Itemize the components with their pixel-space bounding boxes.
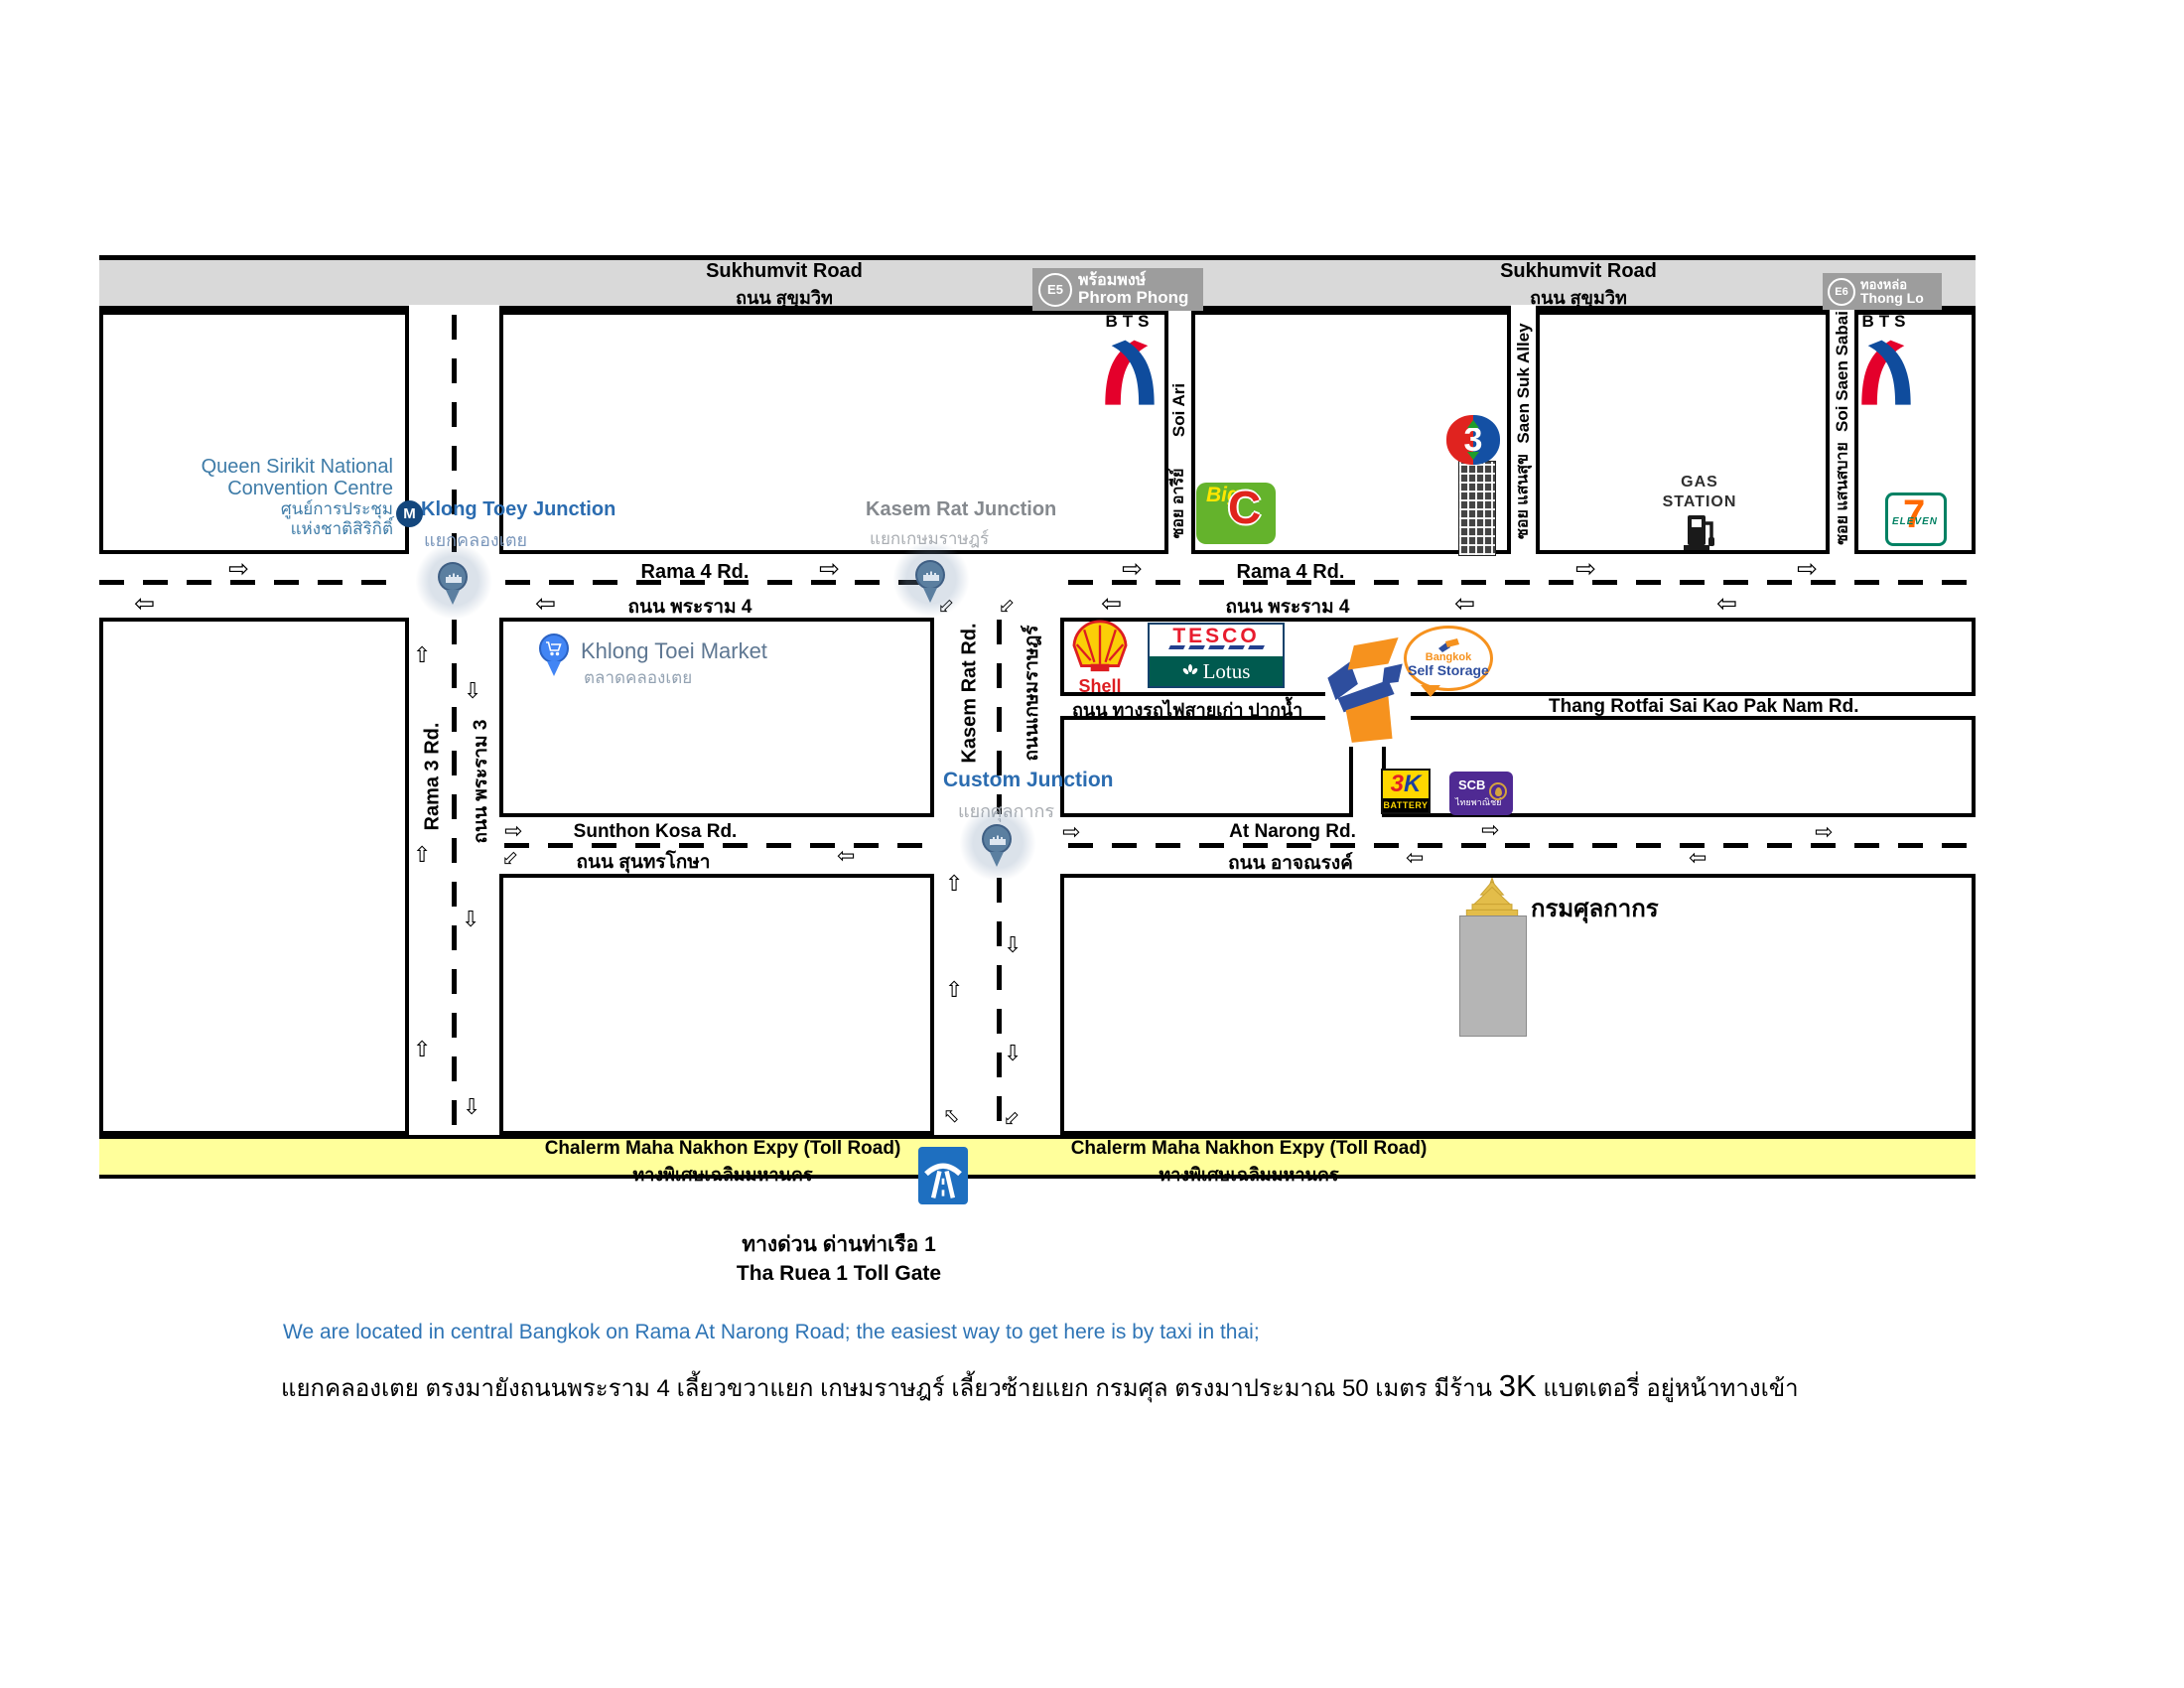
qsncc-th1: ศูนย์การประชุม <box>149 499 393 519</box>
kasem-rat-centerline <box>997 878 1002 1133</box>
3k-battery-word: BATTERY <box>1383 798 1429 812</box>
block-mid-east-a <box>1060 716 1353 817</box>
3k-k: K <box>1404 773 1421 796</box>
mrt-logo-icon: M <box>396 500 423 527</box>
shell-shell-icon <box>1068 620 1132 673</box>
sukhumvit-th: ถนน สุขุมวิท <box>635 283 933 312</box>
ch3-logo: 3 <box>1446 415 1500 465</box>
arrow-left-icon: ⇦ <box>837 846 855 868</box>
station-code-e5: E5 <box>1038 273 1072 307</box>
expressway-label-west: Chalerm Maha Nakhon Expy (Toll Road) ทาง… <box>524 1138 921 1189</box>
bts-mark-icon <box>1854 332 1918 405</box>
arrow-left-icon: ⇦ <box>134 591 155 616</box>
kasem-rat-label-th: ถนนเกษมราษฎร์ <box>1017 626 1046 762</box>
bts-wordmark: BTS <box>1090 312 1169 332</box>
bubble-tail <box>1421 685 1440 707</box>
gas-station-label: GAS STATION <box>1648 473 1751 512</box>
seven-number: 7 <box>1903 492 1925 537</box>
expressway-label-east: Chalerm Maha Nakhon Expy (Toll Road) ทาง… <box>1050 1138 1447 1189</box>
toll-gate-label-th: ทางด่วน ด่านท่าเรือ 1 <box>685 1228 993 1261</box>
kasem-rat-junction-pin-icon <box>913 560 947 608</box>
rama4-label-west-en: Rama 4 Rd. <box>625 561 764 584</box>
saen-suk-label-en: Saen Suk Alley <box>1514 323 1534 443</box>
arrow-up-icon: ⇧ <box>945 980 963 1002</box>
phrom-phong-en: Phrom Phong <box>1078 289 1188 307</box>
self-storage-bubble-logo: Bangkok Self Storage <box>1404 626 1493 691</box>
tesco-dashes <box>1150 645 1283 649</box>
arrow-right-icon: ⇨ <box>1062 822 1080 844</box>
shell-logo: Shell <box>1064 620 1136 697</box>
sunthon-kosa-label-th: ถนน สุนทรโกษา <box>554 847 733 877</box>
arrow-up-icon: ⇧ <box>945 874 963 896</box>
rama3-label-en: Rama 3 Rd. <box>422 723 445 831</box>
arrow-right-icon: ⇨ <box>1122 556 1143 581</box>
tesco-lotus-logo: TESCO Lotus <box>1148 623 1285 688</box>
expressway-th: ทางพิเศษเฉลิมมหานคร <box>1050 1160 1447 1189</box>
arrow-southwest-icon: ⇦ <box>998 1105 1024 1131</box>
qsncc-th2: แห่งชาติสิริกิติ์ <box>149 519 393 539</box>
note-thai: แยกคลองเตย ตรงมายังถนนพระราม 4 เลี้ยวขวา… <box>281 1368 1799 1407</box>
bangkok-direction-map: Sukhumvit Road ถนน สุขุมวิท Sukhumvit Ro… <box>0 0 2184 1688</box>
customs-dept-label: กรมศุลกากร <box>1531 889 1659 927</box>
rama4-label-east-th: ถนน พระราม 4 <box>1203 592 1372 622</box>
arrow-southwest-icon: ⇦ <box>496 845 522 871</box>
sukhumvit-th: ถนน สุขุมวิท <box>1430 283 1727 312</box>
ch3-building <box>1458 461 1496 556</box>
arrow-right-icon: ⇨ <box>1575 556 1596 581</box>
note-thai-post: แบตเตอรี่ อยู่หน้าทางเข้า <box>1537 1375 1799 1402</box>
ch3-number: 3 <box>1464 423 1483 457</box>
custom-junction-en: Custom Junction <box>943 769 1114 792</box>
rama4-centerline <box>1068 580 1974 585</box>
kasem-rat-junction-en: Kasem Rat Junction <box>866 498 1056 521</box>
bts-logo-phrom-phong: BTS <box>1090 312 1169 410</box>
qsncc-line2: Convention Centre <box>149 478 393 499</box>
customs-building <box>1459 915 1527 1037</box>
expressway-en: Chalerm Maha Nakhon Expy (Toll Road) <box>524 1138 921 1160</box>
arrow-right-icon: ⇨ <box>228 556 249 581</box>
arrow-down-icon: ⇩ <box>464 681 481 703</box>
bts-badge-phrom-phong: E5 พร้อมพงษ์ Phrom Phong <box>1032 268 1203 311</box>
soi-ari-label-en: Soi Ari <box>1169 383 1189 437</box>
bts-logo-thong-lo: BTS <box>1846 312 1926 410</box>
arrow-up-icon: ⇧ <box>413 845 431 867</box>
railway-road-label-th: ถนน ทางรถไฟสายเก่า ปากน้ำ <box>1072 695 1302 724</box>
gas-line1: GAS <box>1648 473 1751 492</box>
sukhumvit-en: Sukhumvit Road <box>635 260 933 283</box>
gas-pump-icon <box>1680 511 1719 553</box>
arrow-left-icon: ⇦ <box>1689 848 1706 870</box>
expressway-en: Chalerm Maha Nakhon Expy (Toll Road) <box>1050 1138 1447 1160</box>
bts-mark-icon <box>1098 332 1161 405</box>
bts-badge-thong-lo: E6 ทองหล่อ Thong Lo <box>1823 273 1942 310</box>
rama4-label-east-en: Rama 4 Rd. <box>1221 561 1360 584</box>
saen-suk-label-th: ซอย แสนสุข <box>1511 454 1536 539</box>
arrow-down-icon: ⇩ <box>463 1097 480 1119</box>
arrow-left-icon: ⇦ <box>1716 591 1737 616</box>
kerb-gap <box>1511 305 1536 312</box>
cart-icon <box>545 640 563 656</box>
self-storage-boxes-icon <box>1436 638 1460 652</box>
bts-wordmark: BTS <box>1846 312 1926 332</box>
scb-logo: SCB ไทยพาณิชย์ <box>1449 772 1513 815</box>
phrom-phong-th: พร้อมพงษ์ <box>1078 272 1188 289</box>
market-label-en: Khlong Toei Market <box>581 638 767 664</box>
battery-3k-logo: 3K BATTERY <box>1381 769 1431 814</box>
arrow-left-icon: ⇦ <box>1406 848 1424 870</box>
scb-word: SCB <box>1458 777 1485 792</box>
arrow-down-icon: ⇩ <box>1004 1044 1022 1065</box>
rama3-centerline <box>452 620 457 1133</box>
thong-lo-th: ทองหล่อ <box>1860 278 1924 291</box>
qsncc-line1: Queen Sirikit National <box>149 456 393 478</box>
sukhumvit-label-west: Sukhumvit Road ถนน สุขุมวิท <box>635 260 933 312</box>
arrow-right-icon: ⇨ <box>1481 820 1499 842</box>
rama4-centerline <box>99 580 403 585</box>
note-thai-3k: 3K <box>1499 1368 1537 1403</box>
arrow-northwest-icon: ⇧ <box>938 1103 964 1129</box>
arrow-right-icon: ⇨ <box>1797 556 1818 581</box>
custom-junction-pin-icon <box>980 824 1014 872</box>
lotus-flower-icon <box>1182 663 1198 679</box>
arrow-southwest-icon: ⇦ <box>993 593 1019 619</box>
self-storage-mark-icon <box>1323 635 1405 747</box>
lotus-word: Lotus <box>1203 659 1251 684</box>
sunthon-kosa-label-en: Sunthon Kosa Rd. <box>566 821 745 843</box>
note-thai-pre: แยกคลองเตย ตรงมายังถนนพระราม 4 เลี้ยวขวา… <box>281 1375 1499 1402</box>
klong-toey-junction-pin-icon <box>436 562 470 610</box>
railway-road-label-en: Thang Rotfai Sai Kao Pak Nam Rd. <box>1549 696 1859 718</box>
market-label-th: ตลาดคลองเตย <box>584 664 692 691</box>
self-storage-name: Self Storage <box>1408 663 1489 678</box>
thong-lo-en: Thong Lo <box>1860 291 1924 306</box>
at-narong-label-en: At Narong Rd. <box>1213 821 1372 843</box>
note-english: We are located in central Bangkok on Ram… <box>283 1321 1260 1344</box>
customs-crown-icon <box>1457 878 1527 917</box>
seven-eleven-logo: 7 ELEVEN <box>1885 492 1947 546</box>
arrow-right-icon: ⇨ <box>819 556 840 581</box>
market-pin-icon <box>537 633 571 681</box>
block-south-west <box>499 874 934 1135</box>
rama4-label-west-th: ถนน พระราม 4 <box>606 592 774 622</box>
expressway-th: ทางพิเศษเฉลิมมหานคร <box>524 1160 921 1189</box>
rama3-label-th: ถนน พระราม 3 <box>466 720 495 844</box>
arrow-down-icon: ⇩ <box>1004 935 1022 957</box>
kasem-rat-label-en: Kasem Rat Rd. <box>959 623 982 763</box>
block-west <box>99 618 409 1135</box>
eleven-word: ELEVEN <box>1892 516 1938 527</box>
klong-toey-junction-en: Klong Toey Junction <box>421 498 615 521</box>
scb-emblem-icon <box>1489 782 1507 800</box>
arrow-left-icon: ⇦ <box>1101 591 1122 616</box>
arrow-right-icon: ⇨ <box>504 821 522 843</box>
arrow-down-icon: ⇩ <box>462 910 479 931</box>
arrow-left-icon: ⇦ <box>1454 591 1475 616</box>
arrow-right-icon: ⇨ <box>1815 822 1833 844</box>
sukhumvit-en: Sukhumvit Road <box>1430 260 1727 283</box>
arrow-up-icon: ⇧ <box>413 1040 431 1061</box>
expressway-band <box>99 1135 1976 1179</box>
big-c-logo: Big C <box>1196 483 1276 544</box>
motorway-icon <box>918 1147 968 1204</box>
station-code-e6: E6 <box>1828 278 1855 306</box>
saen-sabai-label-th: ซอย แสนสบาย <box>1831 442 1855 545</box>
big-c-c: C <box>1228 485 1261 530</box>
arrow-left-icon: ⇦ <box>535 591 556 616</box>
at-narong-label-th: ถนน อาจณรงค์ <box>1201 848 1380 878</box>
qsncc-label: Queen Sirikit National Convention Centre… <box>149 456 393 539</box>
soi-ari-label-th: ซอย อารีย์ <box>1166 469 1191 539</box>
toll-gate-label-en: Tha Ruea 1 Toll Gate <box>685 1262 993 1286</box>
gas-line2: STATION <box>1648 492 1751 512</box>
sukhumvit-label-east: Sukhumvit Road ถนน สุขุมวิท <box>1430 260 1727 312</box>
3k-three: 3 <box>1391 773 1404 796</box>
arrow-up-icon: ⇧ <box>413 645 431 667</box>
shell-word: Shell <box>1064 676 1136 697</box>
kerb-gap <box>409 305 499 312</box>
